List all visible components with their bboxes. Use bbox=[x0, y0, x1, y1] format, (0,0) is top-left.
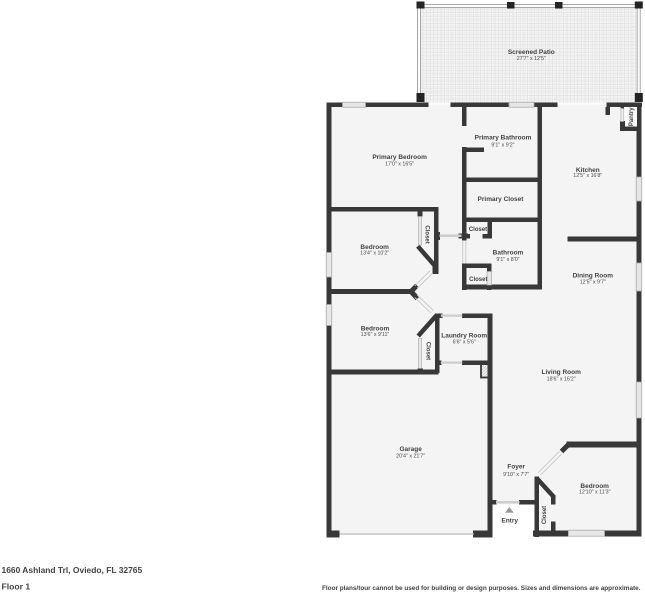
svg-text:Screened Patio: Screened Patio bbox=[508, 49, 555, 56]
svg-text:9'10" x 7'7": 9'10" x 7'7" bbox=[503, 472, 529, 478]
svg-text:Garage: Garage bbox=[399, 446, 422, 453]
svg-text:27'7" x 12'5": 27'7" x 12'5" bbox=[517, 56, 546, 62]
svg-text:12'10" x 11'3": 12'10" x 11'3" bbox=[579, 490, 611, 496]
svg-text:12'5" x 16'8": 12'5" x 16'8" bbox=[573, 173, 602, 179]
svg-text:Floor 1: Floor 1 bbox=[2, 581, 31, 591]
svg-text:9'1" x 8'0": 9'1" x 8'0" bbox=[496, 257, 519, 263]
svg-text:9'1" x 9'2": 9'1" x 9'2" bbox=[491, 142, 514, 148]
svg-text:Primary Bathroom: Primary Bathroom bbox=[475, 135, 532, 142]
svg-text:Foyer: Foyer bbox=[507, 463, 525, 470]
svg-text:Closet: Closet bbox=[425, 342, 431, 360]
svg-text:17'0" x 16'5": 17'0" x 16'5" bbox=[385, 161, 414, 167]
svg-text:13'4" x 10'2": 13'4" x 10'2" bbox=[360, 251, 389, 257]
svg-text:20'4" x 21'7": 20'4" x 21'7" bbox=[396, 454, 425, 460]
svg-text:Living Room: Living Room bbox=[542, 369, 582, 376]
svg-text:Bathroom: Bathroom bbox=[493, 249, 524, 256]
svg-text:1660 Ashland Trl, Oviedo, FL 3: 1660 Ashland Trl, Oviedo, FL 32765 bbox=[2, 565, 143, 575]
svg-text:Primary Closet: Primary Closet bbox=[478, 196, 525, 203]
svg-text:Closet: Closet bbox=[469, 227, 487, 233]
svg-text:Closet: Closet bbox=[424, 225, 430, 243]
svg-text:18'6" x 16'2": 18'6" x 16'2" bbox=[547, 376, 576, 382]
svg-text:Primary Bedroom: Primary Bedroom bbox=[372, 154, 427, 161]
svg-text:Entry: Entry bbox=[501, 518, 518, 525]
svg-text:12'5" x 9'7": 12'5" x 9'7" bbox=[580, 280, 606, 286]
svg-text:13'6" x 9'11": 13'6" x 9'11" bbox=[361, 332, 390, 338]
svg-text:Closet: Closet bbox=[542, 506, 548, 524]
svg-text:Laundry Room: Laundry Room bbox=[441, 333, 487, 340]
svg-text:Closet: Closet bbox=[469, 277, 487, 283]
svg-text:Floor plans/tour cannot be use: Floor plans/tour cannot be used for buil… bbox=[322, 585, 641, 592]
svg-text:Dining Room: Dining Room bbox=[573, 272, 614, 279]
svg-text:6'6" x 5'6": 6'6" x 5'6" bbox=[453, 340, 476, 346]
svg-text:Pantry: Pantry bbox=[629, 107, 635, 126]
